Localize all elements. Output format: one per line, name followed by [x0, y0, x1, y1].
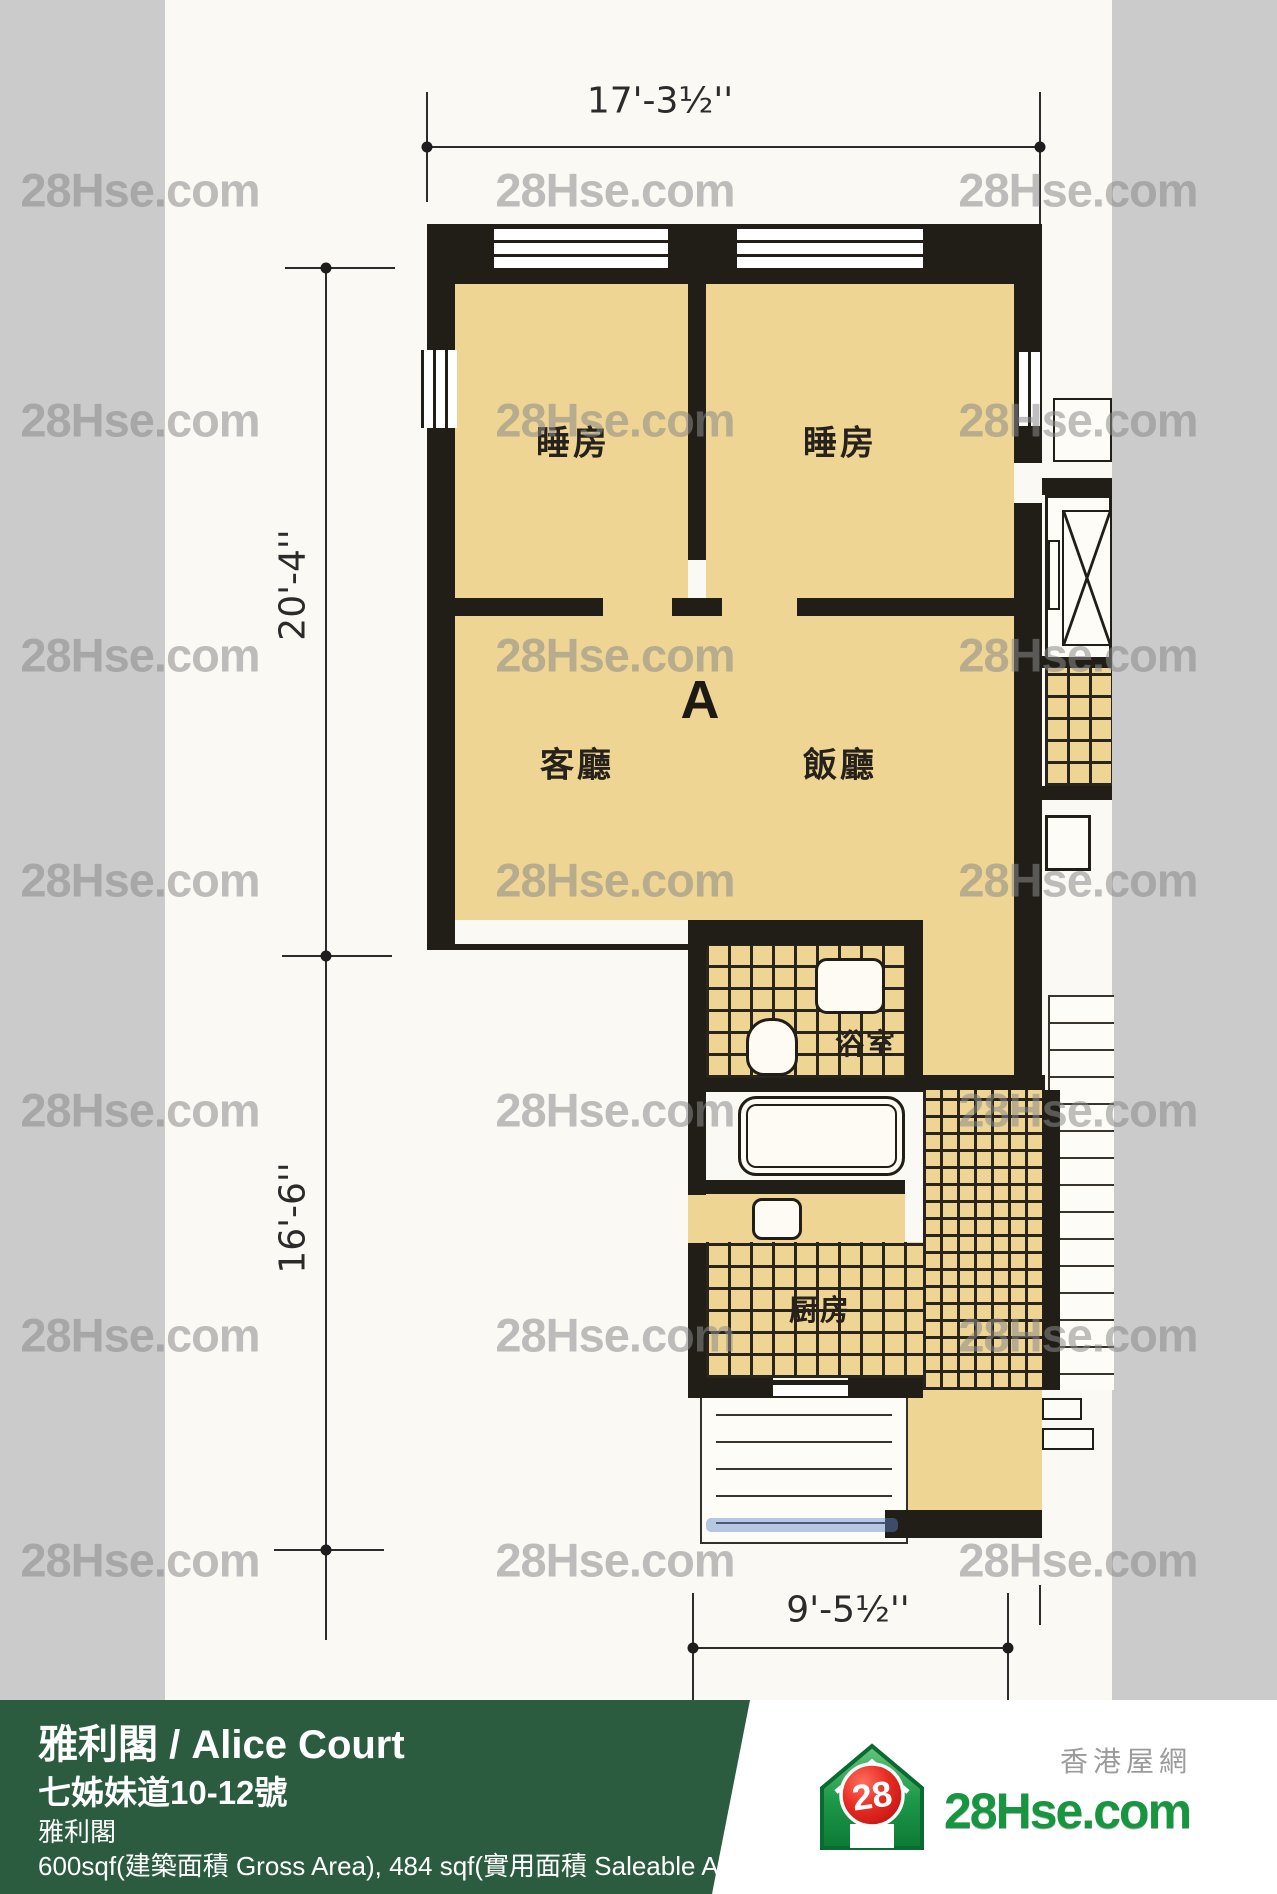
watermark: 28Hse.com — [958, 163, 1197, 218]
watermark: 28Hse.com — [958, 1308, 1197, 1363]
estate-name: 雅利閣 — [38, 1812, 116, 1849]
dimension-tick — [285, 267, 395, 269]
bathtub — [738, 1096, 905, 1176]
logo-badge-number: 28 — [849, 1772, 894, 1818]
watermark: 28Hse.com — [495, 1308, 734, 1363]
yard-area — [908, 1390, 1042, 1510]
wall — [1042, 478, 1112, 495]
dimension-line — [427, 146, 1040, 148]
dimension-left-upper: 20'-4'' — [273, 529, 314, 640]
wall — [905, 945, 923, 1078]
balcony-railing — [716, 1414, 892, 1526]
lift-x-icon — [1064, 512, 1110, 644]
pen-mark — [706, 1518, 898, 1532]
dimension-bottom: 9'-5½'' — [786, 1590, 909, 1631]
watermark: 28Hse.com — [958, 393, 1197, 448]
wall — [848, 1378, 923, 1398]
utility-area — [706, 1194, 905, 1242]
dimension-dot — [1003, 1643, 1014, 1654]
dimension-dot — [321, 951, 332, 962]
washbasin — [752, 1198, 802, 1240]
stair-step — [1042, 1398, 1082, 1420]
toilet — [746, 1018, 798, 1076]
logo-house-icon: 28 — [810, 1738, 934, 1856]
sink — [815, 958, 885, 1014]
window — [494, 224, 668, 268]
watermark: 28Hse.com — [20, 163, 259, 218]
dimension-dot — [321, 1545, 332, 1556]
dimension-dot — [422, 142, 433, 153]
kitchen-label: 厨房 — [789, 1287, 851, 1329]
watermark: 28Hse.com — [495, 628, 734, 683]
site-logo: 28 28Hse.com 香港屋網 — [810, 1738, 1240, 1868]
wall — [688, 920, 923, 945]
door-gap — [688, 1195, 706, 1243]
dimension-tick — [282, 955, 392, 957]
window — [737, 224, 923, 268]
watermark: 28Hse.com — [20, 628, 259, 683]
wall — [672, 598, 722, 616]
logo-chinese-name: 香港屋網 — [1060, 1740, 1192, 1780]
wall — [706, 1078, 923, 1092]
dimension-top: 17'-3½'' — [587, 81, 733, 122]
watermark: 28Hse.com — [20, 393, 259, 448]
info-footer: 雅利閣 / Alice Court 七姊妹道10-12號 雅利閣 600sqf(… — [0, 1700, 1277, 1894]
watermark: 28Hse.com — [495, 163, 734, 218]
watermark: 28Hse.com — [495, 853, 734, 908]
lift-panel — [1048, 540, 1060, 610]
wall — [688, 945, 706, 1195]
lift-cab — [1062, 510, 1112, 646]
dining-room-label: 飯廳 — [803, 738, 877, 787]
watermark: 28Hse.com — [495, 393, 734, 448]
watermark: 28Hse.com — [958, 1533, 1197, 1588]
estate-title: 雅利閣 / Alice Court — [38, 1712, 405, 1770]
dimension-dot — [321, 263, 332, 274]
floorplan-page: 睡房 睡房 A 客廳 飯廳 浴室 厨房 17'-3½'' 20'-4'' 16'… — [0, 0, 1277, 1894]
left-gray-strip — [0, 0, 165, 1700]
bedroom-2-label: 睡房 — [803, 416, 877, 465]
wall — [688, 1378, 773, 1398]
wall — [1014, 503, 1042, 1090]
dimension-dot — [688, 1643, 699, 1654]
watermark: 28Hse.com — [20, 1533, 259, 1588]
living-room-label: 客廳 — [540, 738, 614, 787]
estate-address: 七姊妹道10-12號 — [38, 1766, 287, 1814]
area-info: 600sqf(建築面積 Gross Area), 484 sqf(實用面積 Sa… — [38, 1846, 765, 1883]
door-gap — [722, 598, 797, 616]
watermark: 28Hse.com — [958, 628, 1197, 683]
wall — [668, 224, 737, 268]
stair-step — [1042, 1428, 1094, 1450]
corridor-area — [923, 920, 1014, 1090]
window — [421, 350, 457, 428]
bathroom-label: 浴室 — [835, 1021, 897, 1063]
wall — [427, 224, 455, 950]
watermark: 28Hse.com — [958, 1083, 1197, 1138]
wall — [1042, 786, 1112, 800]
dimension-left-lower: 16'-6'' — [273, 1162, 314, 1273]
watermark: 28Hse.com — [495, 1083, 734, 1138]
extension-line — [1039, 1585, 1041, 1625]
dimension-dot — [1035, 142, 1046, 153]
wall — [427, 266, 1042, 284]
door-gap — [603, 598, 672, 616]
watermark: 28Hse.com — [20, 1308, 259, 1363]
logo-site-name: 28Hse.com — [944, 1782, 1190, 1840]
watermark: 28Hse.com — [495, 1533, 734, 1588]
wall — [797, 598, 1014, 616]
balcony-door — [773, 1380, 848, 1398]
wall — [706, 1180, 905, 1194]
watermark: 28Hse.com — [20, 1083, 259, 1138]
watermark: 28Hse.com — [958, 853, 1197, 908]
wall — [427, 944, 707, 950]
watermark: 28Hse.com — [20, 853, 259, 908]
dimension-line — [693, 1647, 1008, 1649]
right-gray-strip — [1112, 0, 1277, 1700]
wall — [455, 598, 603, 616]
